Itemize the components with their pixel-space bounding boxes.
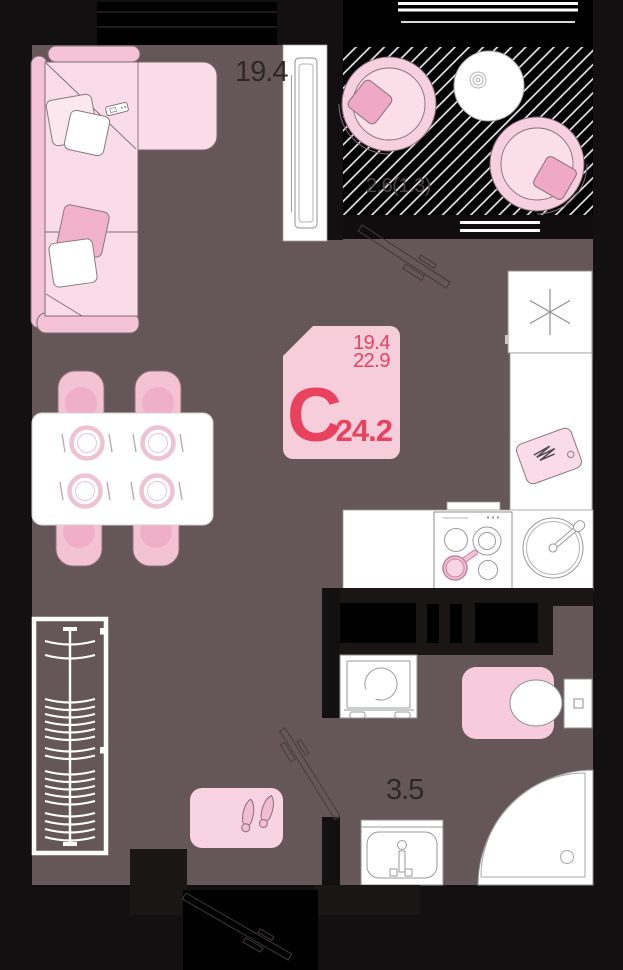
bathroom-wall [322,817,340,885]
balcony-table [454,51,524,121]
tv-panel [283,45,327,241]
toilet [510,679,592,728]
pillow [63,109,110,156]
floor-plan-drawing [0,0,623,970]
pillow [48,238,98,288]
balcony-window [343,215,593,239]
balcony-partition-wall [327,0,343,240]
living-room-area-label: 19.4 [235,58,287,87]
stove [434,512,512,589]
badge-area-excl-balcony: 22.9 [353,352,390,370]
kitchen-counter-tall [510,353,592,511]
washing-machine [340,655,417,718]
bathroom-wall [322,588,340,718]
dining-table [32,413,213,525]
fridge [505,271,592,353]
badge-total-area: 24.2 [336,413,392,449]
vent-shaft [322,588,593,655]
balcony-glazing [398,2,578,5]
badge-type-letter: С [287,372,342,459]
badge-areas: 19.4 22.9 [353,334,390,370]
bathroom-area-label: 3.5 [386,776,423,805]
apartment-badge: 19.4 22.9 С 24.2 [283,326,400,459]
balcony-area-label: 2.6(1.3) [366,176,431,196]
tv [295,58,317,228]
floor-plan: 19.4 2.6(1.3) 3.5 19.4 22.9 С 24.2 [0,0,623,970]
living-room-window [97,2,277,45]
bathroom-sink [361,820,443,885]
shower-drain [561,851,574,864]
